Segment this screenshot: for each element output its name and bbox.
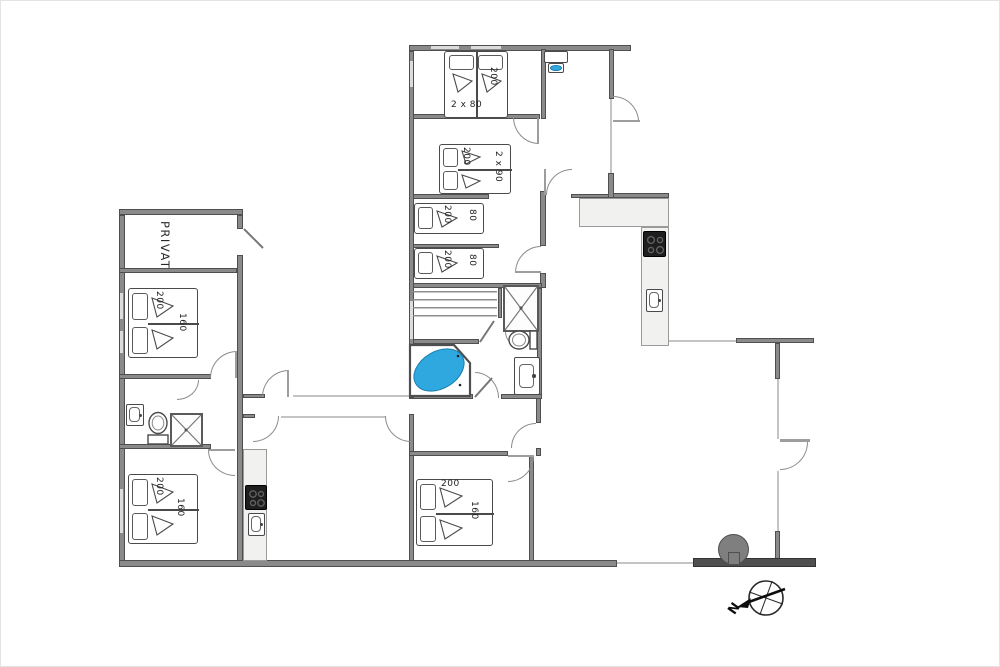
bed-width-label: 160 [175,498,184,517]
bed-width-label: 160 [177,313,186,332]
vanity-sink-icon [514,357,540,395]
door-leaf [244,229,263,248]
bed-width-label: 160 [469,501,478,520]
bed-width-label: 80 [467,254,476,266]
bed-width-label: 2 x 80 [451,101,482,110]
sink-icon [248,513,265,536]
private-room-label: PRIVAT [158,221,172,269]
bathtub-icon [408,343,474,399]
sauna-benches [413,291,497,318]
bed-width-label: 80 [467,209,476,221]
toilet-icon [507,329,539,353]
sink-icon [126,404,144,426]
compass-icon: N [728,573,808,627]
door-leaf [480,321,494,342]
bed-length-label: 200 [442,205,451,224]
sink-icon [646,289,663,312]
tree-trunk-icon [728,552,740,565]
cooktop-icon [245,485,267,510]
toilet-icon [146,411,170,447]
door-leaf [475,378,492,397]
shower-icon [170,413,203,447]
bed-length-label: 200 [441,480,460,489]
compass-north-label: N [725,600,744,618]
bed-length-label: 200 [442,250,451,269]
bed-double [416,479,493,546]
bed-length-label: 200 [461,147,470,166]
water-heater-icon [548,63,564,73]
floor-plan: PRIVAT 200 2 x 80 200 2 x 90 200 80 200 … [0,0,1000,667]
bed-width-label: 2 x 90 [493,151,502,182]
shower-icon [503,285,539,332]
bed-length-label: 200 [488,67,497,86]
bed-length-label: 200 [154,477,163,496]
kitchen-counter [579,198,669,227]
cooktop-icon [643,231,666,257]
water-heater-icon [544,51,568,63]
bed-length-label: 200 [154,291,163,310]
